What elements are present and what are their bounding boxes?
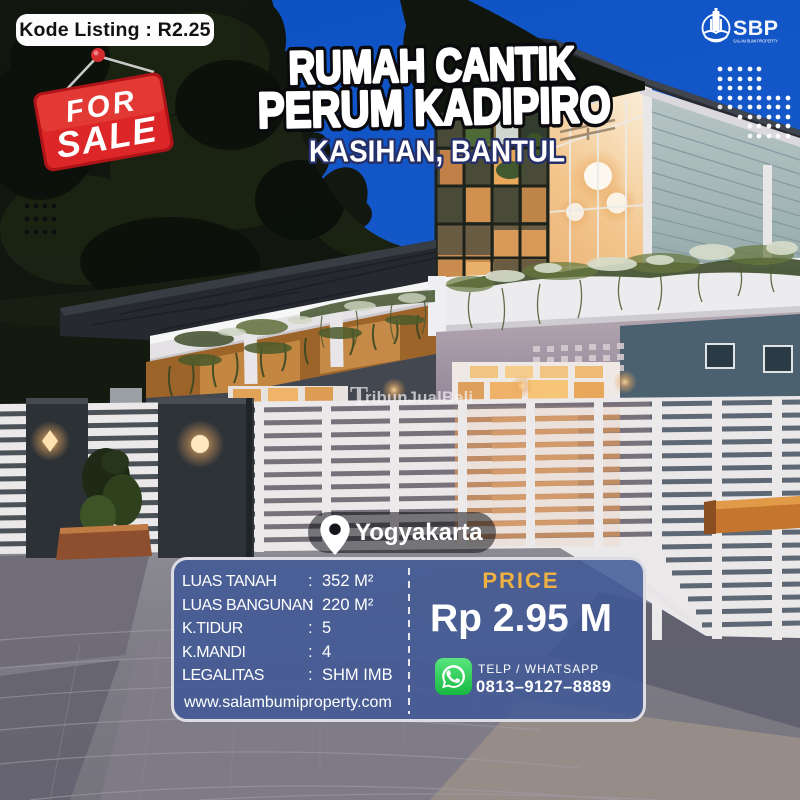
svg-text:SALAM BUMI PROPERTY: SALAM BUMI PROPERTY [733, 39, 778, 44]
svg-text:ribunJualBeli: ribunJualBeli [365, 389, 473, 407]
svg-text:SBP: SBP [733, 16, 778, 40]
svg-text:KASIHAN, BANTUL: KASIHAN, BANTUL [309, 134, 565, 169]
svg-text:PERUM KADIPIRO: PERUM KADIPIRO [257, 77, 611, 139]
